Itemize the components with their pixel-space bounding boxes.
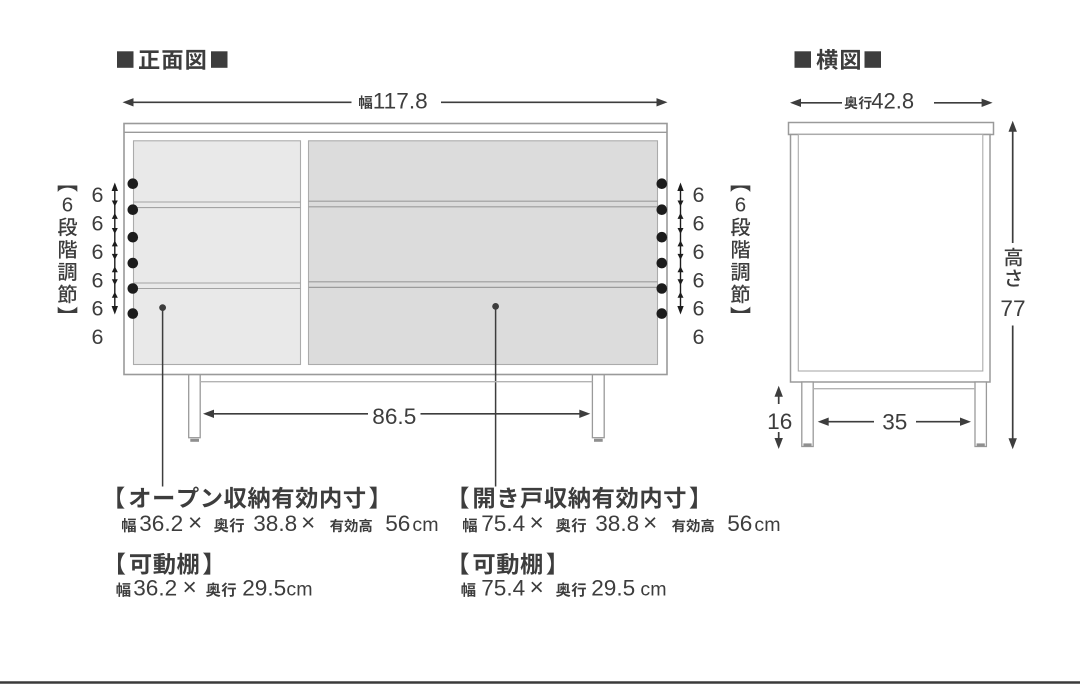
svg-text:cm: cm [754, 514, 780, 536]
svg-text:36.2: 36.2 [139, 511, 183, 536]
svg-text:29.5: 29.5 [242, 576, 286, 601]
svg-text:×: × [643, 510, 657, 537]
svg-text:×: × [183, 574, 197, 601]
svg-text:cm: cm [640, 579, 666, 601]
svg-text:6: 6 [92, 325, 104, 349]
svg-text:6: 6 [92, 297, 104, 321]
svg-text:38.8: 38.8 [253, 511, 297, 536]
svg-text:75.4: 75.4 [481, 511, 525, 536]
svg-text:×: × [530, 574, 544, 601]
svg-text:6: 6 [693, 240, 705, 264]
svg-text:6: 6 [92, 268, 104, 292]
svg-text:35: 35 [882, 410, 907, 435]
svg-text:56: 56 [385, 511, 410, 536]
svg-text:cm: cm [412, 514, 438, 536]
svg-text:6: 6 [693, 325, 705, 349]
svg-text:6: 6 [693, 297, 705, 321]
svg-text:42.8: 42.8 [871, 89, 914, 114]
svg-text:29.5: 29.5 [591, 576, 635, 601]
svg-text:75.4: 75.4 [481, 576, 525, 601]
svg-text:6: 6 [92, 212, 104, 236]
svg-text:6: 6 [735, 194, 746, 217]
svg-text:×: × [530, 510, 544, 537]
svg-text:6: 6 [693, 183, 705, 207]
svg-text:38.8: 38.8 [595, 511, 639, 536]
svg-text:56: 56 [727, 511, 752, 536]
svg-text:117.8: 117.8 [373, 88, 428, 113]
svg-text:×: × [301, 510, 315, 537]
svg-text:6: 6 [693, 268, 705, 292]
svg-text:×: × [188, 510, 202, 537]
svg-text:16: 16 [767, 409, 792, 434]
svg-text:36.2: 36.2 [133, 576, 177, 601]
svg-text:77: 77 [1000, 296, 1025, 321]
svg-text:86.5: 86.5 [372, 404, 416, 429]
svg-text:6: 6 [62, 194, 73, 217]
svg-text:6: 6 [92, 240, 104, 264]
svg-text:6: 6 [92, 183, 104, 207]
svg-text:cm: cm [286, 579, 312, 601]
svg-text:6: 6 [693, 212, 705, 236]
